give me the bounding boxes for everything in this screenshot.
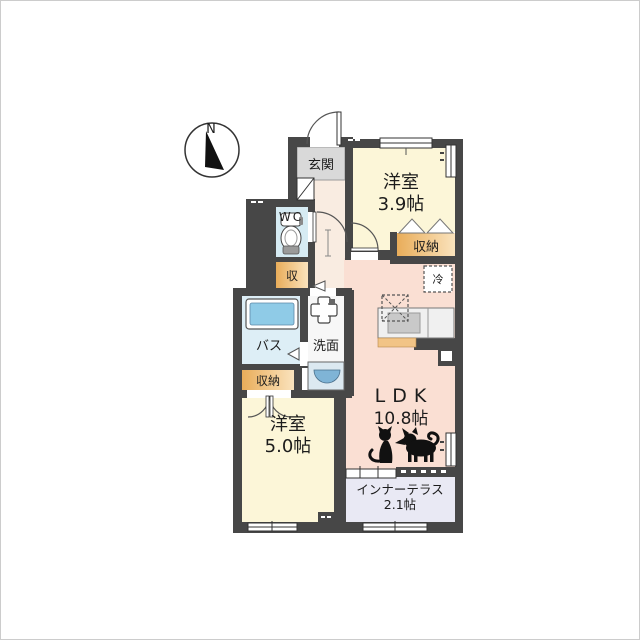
floor-plan-page: N 玄関 洋室 3.9帖 収納 WC 収 バス 洗面 収納 洋室 5.0帖 LD… xyxy=(0,0,640,640)
bedroom-39-label: 洋室 xyxy=(383,172,419,193)
bedroom-50-label: 洋室 xyxy=(270,414,306,435)
refrigerator-label: 冷 xyxy=(433,273,444,286)
ldk-area: 10.8帖 xyxy=(374,409,429,429)
kitchen-counter-accent xyxy=(378,338,416,347)
genkan-label: 玄関 xyxy=(308,158,334,173)
shoe-cabinet xyxy=(297,178,314,200)
kitchen-sink xyxy=(388,313,420,333)
hallway-floor xyxy=(315,200,345,293)
terrace-label: インナーテラス xyxy=(356,482,443,497)
floor-plan-drawing: N 玄関 洋室 3.9帖 収納 WC 収 バス 洗面 収納 洋室 5.0帖 LD… xyxy=(0,0,640,640)
closet-39-label: 収納 xyxy=(413,240,439,255)
wc-label: WC xyxy=(279,210,303,224)
bedroom-50-area: 5.0帖 xyxy=(265,436,312,457)
terrace-area: 2.1帖 xyxy=(384,497,416,512)
storage-hall-label: 収 xyxy=(286,269,298,283)
window-terrace-bottom xyxy=(363,521,427,531)
ldk-label: LDK xyxy=(375,385,434,407)
bathtub xyxy=(246,299,298,329)
compass-north-label: N xyxy=(206,122,216,137)
window-bedroom50-bottom xyxy=(248,521,297,531)
washroom-label: 洗面 xyxy=(313,339,339,354)
compass: N xyxy=(185,122,239,177)
bath-label: バス xyxy=(256,339,282,354)
washbasin-icon xyxy=(308,362,344,390)
bedroom-39-area: 3.9帖 xyxy=(378,194,425,215)
closet-bath-label: 収納 xyxy=(256,374,280,388)
entrance-door xyxy=(307,112,341,147)
